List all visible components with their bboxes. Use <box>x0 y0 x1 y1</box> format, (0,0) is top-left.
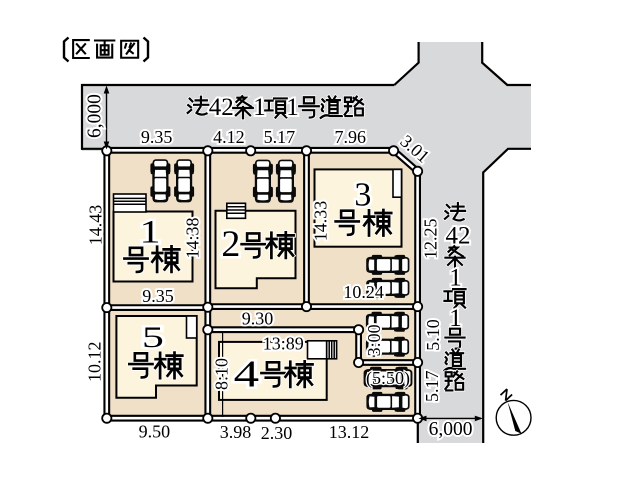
svg-text:(5:50): (5:50) <box>366 368 410 389</box>
svg-text:6,000: 6,000 <box>429 419 473 440</box>
svg-text:5: 5 <box>142 321 164 354</box>
svg-text:5.17: 5.17 <box>422 370 442 402</box>
svg-text:3:00: 3:00 <box>364 324 384 356</box>
svg-text:6,000: 6,000 <box>85 94 106 138</box>
svg-text:42: 42 <box>209 94 234 121</box>
svg-text:14.33: 14.33 <box>311 201 331 242</box>
svg-text:9.50: 9.50 <box>139 421 171 441</box>
svg-text:13.12: 13.12 <box>329 422 370 442</box>
svg-text:8:10: 8:10 <box>211 358 231 390</box>
svg-text:3.98: 3.98 <box>220 422 252 442</box>
svg-text:10.12: 10.12 <box>85 341 105 382</box>
svg-text:1: 1 <box>449 264 462 291</box>
svg-text:14:38: 14:38 <box>182 217 202 258</box>
svg-text:4.12: 4.12 <box>213 127 245 147</box>
svg-text:5.17: 5.17 <box>264 127 296 147</box>
svg-text:9.35: 9.35 <box>141 127 173 147</box>
svg-text:2.30: 2.30 <box>261 423 293 443</box>
svg-text:7.96: 7.96 <box>334 127 366 147</box>
svg-text:42: 42 <box>446 223 471 250</box>
svg-text:1: 1 <box>253 94 266 121</box>
svg-text:12.25: 12.25 <box>421 218 441 259</box>
svg-text:14.43: 14.43 <box>86 205 106 246</box>
svg-text:2: 2 <box>221 224 240 265</box>
svg-text:9.30: 9.30 <box>242 308 274 328</box>
svg-text:9.35: 9.35 <box>142 286 174 306</box>
svg-text:10.24: 10.24 <box>343 282 384 302</box>
svg-text:5.10: 5.10 <box>423 319 443 351</box>
svg-text:4: 4 <box>234 354 260 396</box>
svg-text:13:89: 13:89 <box>263 333 304 353</box>
svg-text:1: 1 <box>286 94 299 121</box>
